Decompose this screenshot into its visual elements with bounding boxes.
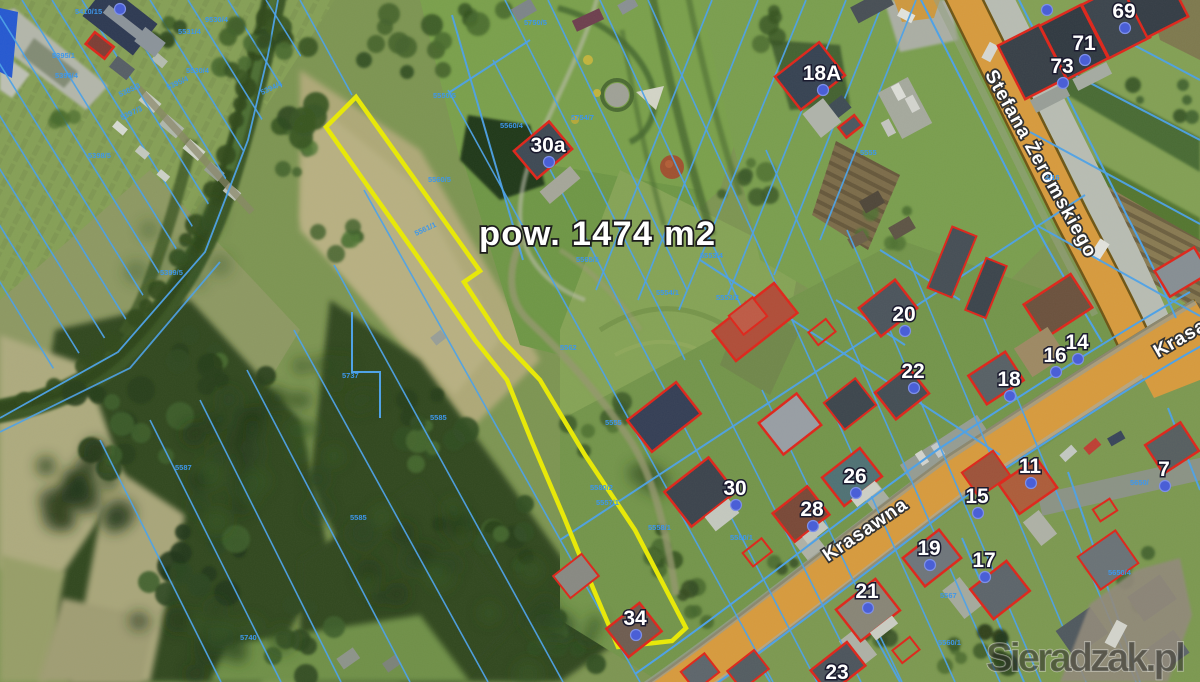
svg-text:18: 18 bbox=[997, 368, 1021, 391]
svg-text:5557/1: 5557/1 bbox=[596, 498, 619, 507]
svg-text:20: 20 bbox=[892, 303, 915, 326]
svg-text:5565/5: 5565/5 bbox=[576, 255, 599, 264]
svg-text:5550/5: 5550/5 bbox=[433, 91, 456, 100]
svg-text:5396/4: 5396/4 bbox=[55, 71, 79, 80]
svg-text:5554/1: 5554/1 bbox=[656, 288, 679, 297]
svg-text:5560/5: 5560/5 bbox=[428, 175, 451, 184]
svg-text:5650/4: 5650/4 bbox=[1108, 568, 1132, 577]
svg-text:21: 21 bbox=[855, 580, 879, 603]
svg-text:30a: 30a bbox=[530, 134, 565, 157]
svg-text:71: 71 bbox=[1072, 32, 1096, 55]
svg-text:16: 16 bbox=[1043, 344, 1066, 367]
svg-text:5398/5: 5398/5 bbox=[88, 151, 111, 160]
svg-text:5555: 5555 bbox=[605, 418, 622, 427]
svg-text:5585: 5585 bbox=[350, 513, 367, 522]
svg-text:28: 28 bbox=[800, 498, 824, 521]
svg-text:19: 19 bbox=[917, 537, 940, 560]
svg-text:5531/4: 5531/4 bbox=[178, 27, 202, 36]
svg-text:pow. 1474 m2: pow. 1474 m2 bbox=[479, 215, 715, 253]
svg-text:4/16: 4/16 bbox=[1045, 173, 1060, 182]
svg-text:5737: 5737 bbox=[342, 371, 359, 380]
svg-text:5580/2: 5580/2 bbox=[590, 483, 613, 492]
svg-text:5754/7: 5754/7 bbox=[571, 113, 594, 122]
svg-text:5410/15: 5410/15 bbox=[75, 7, 102, 16]
svg-text:5740: 5740 bbox=[240, 633, 257, 642]
svg-text:11: 11 bbox=[1019, 455, 1042, 478]
svg-text:Sieradzak.pl: Sieradzak.pl bbox=[986, 636, 1186, 680]
svg-text:26: 26 bbox=[843, 465, 866, 488]
svg-text:5553/2: 5553/2 bbox=[716, 293, 739, 302]
svg-text:5585: 5585 bbox=[430, 413, 447, 422]
svg-text:5750/5: 5750/5 bbox=[524, 18, 547, 27]
svg-text:9530/4: 9530/4 bbox=[205, 15, 229, 24]
svg-text:5562: 5562 bbox=[560, 343, 577, 352]
svg-text:5567: 5567 bbox=[940, 591, 957, 600]
svg-text:5560/1: 5560/1 bbox=[938, 638, 961, 647]
svg-text:73: 73 bbox=[1050, 55, 1073, 78]
svg-text:22: 22 bbox=[901, 360, 924, 383]
svg-text:69: 69 bbox=[1112, 0, 1135, 23]
svg-text:5580/1: 5580/1 bbox=[730, 533, 753, 542]
svg-text:7: 7 bbox=[1158, 458, 1170, 481]
svg-text:23: 23 bbox=[825, 661, 848, 682]
svg-text:14: 14 bbox=[1065, 331, 1089, 354]
svg-text:5560/4: 5560/4 bbox=[500, 121, 524, 130]
svg-text:5558/1: 5558/1 bbox=[648, 523, 671, 532]
svg-text:5399/5: 5399/5 bbox=[160, 268, 183, 277]
svg-text:5650/: 5650/ bbox=[1130, 478, 1150, 487]
svg-text:30: 30 bbox=[723, 477, 746, 500]
svg-text:5530/4: 5530/4 bbox=[186, 66, 210, 75]
svg-text:34: 34 bbox=[623, 607, 647, 630]
svg-text:15: 15 bbox=[965, 485, 989, 508]
svg-text:5395/1: 5395/1 bbox=[52, 51, 75, 60]
svg-text:17: 17 bbox=[972, 549, 995, 572]
svg-text:5555: 5555 bbox=[860, 148, 877, 157]
svg-text:18A: 18A bbox=[803, 62, 842, 85]
svg-text:5587: 5587 bbox=[175, 463, 192, 472]
